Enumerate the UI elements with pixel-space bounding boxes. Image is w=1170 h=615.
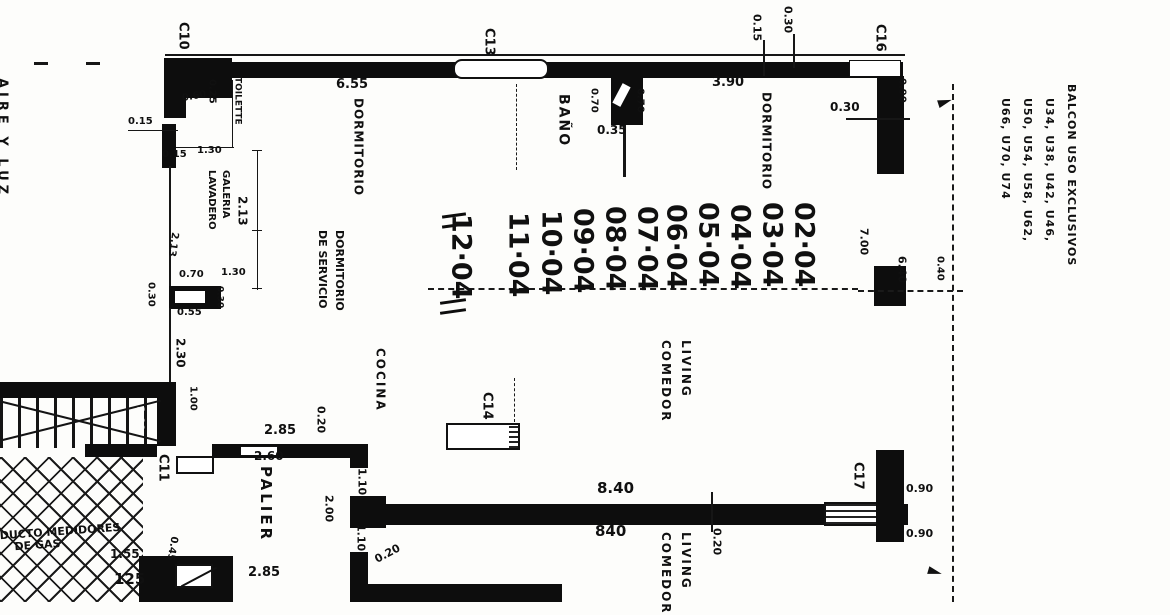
balcony-note-line: U34, U38, U42, U46,: [1038, 98, 1060, 266]
dim-label: 0.20: [373, 542, 402, 565]
dim-label: 0.30: [145, 282, 156, 307]
partition-guide: [516, 84, 517, 170]
door-leaf: [181, 567, 217, 588]
unit-number: 12·04: [446, 214, 474, 299]
room-label-line: LIVING: [676, 532, 696, 615]
dim-label: 1.10: [356, 468, 368, 495]
room-label-toilette: TOILETTE: [232, 77, 241, 125]
column-ref-c14: C14: [480, 392, 494, 420]
duct-slot: [175, 291, 205, 303]
galeria-dim-line: [257, 150, 258, 290]
dim-label: 0.40: [934, 256, 945, 281]
dim-label: 0.70: [588, 88, 599, 113]
dim-tick: [252, 150, 262, 151]
partition-guide: [514, 378, 515, 422]
dim-label: 6.55: [336, 78, 368, 92]
stair-right-wall: [157, 396, 176, 446]
dim-line-015: [128, 130, 178, 131]
dim-label: 1.30: [221, 268, 246, 279]
room-label-dormitorio-left: DORMITORIO: [352, 98, 365, 196]
dim-label: 2.60: [254, 450, 284, 463]
room-label-bano: BAÑO: [556, 94, 571, 147]
dim-label: 0.70: [634, 88, 645, 113]
stair-lower-wall: [85, 444, 157, 457]
dim-label: 0.90: [896, 78, 907, 103]
dim-label: 0.55: [177, 308, 202, 319]
dim-label: 0.20: [711, 528, 723, 555]
unit-number: 04·04: [725, 204, 753, 289]
column-ref-c13: C13: [482, 28, 496, 56]
room-label-line: COMEDOR: [656, 532, 676, 615]
dim-label: 2.30: [174, 338, 187, 368]
dim-label: 0.35: [597, 124, 627, 137]
column-ref-c16: C16: [873, 24, 887, 52]
dim-tick: [763, 40, 765, 76]
window-c16: [849, 60, 901, 77]
arrow-icon: [937, 96, 953, 108]
room-label-line: LAVADERO: [204, 170, 218, 230]
dim-label: 1.55: [110, 548, 140, 561]
room-label-dormitorio-right: DORMITORIO: [760, 92, 773, 190]
floor-plan-scan: { "rooms": { "dormitorio_left": "DORMITO…: [0, 0, 1170, 602]
dim-label: 0.15: [162, 150, 187, 161]
left-partition-lower: [169, 308, 171, 386]
dim-label: 6.40: [896, 256, 908, 283]
window-c17: [824, 502, 880, 526]
room-label-cocina: COCINA: [374, 348, 387, 412]
centerline: [858, 290, 963, 292]
bottom-wall-2: [350, 584, 562, 602]
dim-label: 0.30: [830, 101, 860, 114]
balcony-note-line: U50, U54, U58, U62,: [1016, 98, 1038, 266]
unit-number: 10·04: [536, 210, 564, 295]
palier-right-wall-a: [350, 444, 368, 468]
plan-break-dash: [86, 62, 100, 65]
dim-label: 2.85: [264, 424, 296, 438]
dim-label: 2.85: [248, 566, 280, 580]
dim-label: 0.70: [179, 270, 204, 281]
balcony-note-line: U66, U70, U74: [994, 98, 1016, 266]
window-c13: [453, 59, 549, 79]
dim-label: 0.20: [315, 406, 327, 433]
dim-label: 125: [114, 572, 145, 588]
room-label-line: DORMITORIO: [331, 230, 348, 311]
dim-label: 2.00: [323, 495, 335, 522]
dim-label: 2.13: [165, 231, 179, 257]
dim-label: 0.30: [214, 286, 223, 308]
room-label-galeria-lavadero: GALERIA LAVADERO: [200, 170, 232, 230]
room-label-living-comedor: LIVING COMEDOR: [650, 340, 696, 423]
fixture-hatch: [509, 425, 518, 448]
balcony-boundary-line: [952, 84, 954, 602]
door-c11: [176, 456, 214, 474]
unit-number: 11·04: [503, 212, 531, 297]
balcony-note: BALCON USO EXCLUSIVOS U34, U38, U42, U46…: [990, 84, 1082, 266]
dim-label: 0.30: [782, 6, 794, 33]
balcony-note-line: BALCON USO EXCLUSIVOS: [1060, 84, 1082, 266]
room-label-living-comedor-2: LIVING COMEDOR: [650, 532, 696, 615]
dim-label: 0.90: [906, 528, 933, 540]
unit-number: 03·04: [757, 202, 785, 287]
stair-top-wall: [0, 382, 176, 398]
dim-label: 0.90: [906, 483, 933, 495]
dim-tick: [793, 34, 795, 68]
plan-break-dash: [34, 62, 48, 65]
dim-label: 1.30: [197, 146, 222, 157]
dim-label: 7.00: [858, 228, 870, 255]
dim-label: 8.40: [597, 481, 634, 497]
fixture-c14: [446, 423, 520, 450]
dim-label: 0.25: [206, 79, 217, 104]
column-c17: [876, 450, 904, 542]
dim-label: 0.60: [181, 90, 207, 105]
left-partition: [169, 166, 171, 288]
unit-number: 02·04: [789, 202, 817, 287]
room-label-line: LIVING: [676, 340, 696, 423]
strike-mark: [440, 308, 466, 315]
arrow-icon: [927, 566, 943, 578]
shaft-label-aire-y-luz: AIRE Y LUZ: [0, 78, 9, 198]
column-ref-c10: C10: [176, 22, 190, 50]
dim-tick: [846, 118, 910, 120]
dim-tick: [711, 492, 713, 532]
room-label-dormitorio-servicio: DORMITORIO DE SERVICIO: [306, 230, 348, 311]
unit-number: 06·04: [661, 204, 689, 289]
dim-label: 1.10: [355, 524, 367, 551]
dim-tick: [252, 288, 262, 289]
room-label-line: COMEDOR: [656, 340, 676, 423]
unit-number: 07·04: [632, 206, 660, 291]
dim-label: 1.00: [187, 386, 198, 411]
room-label-palier: PALIER: [257, 466, 273, 542]
dim-label: 2.13: [236, 196, 249, 226]
room-label-line: GALERIA: [218, 170, 232, 230]
dim-label: 3.90: [712, 76, 744, 90]
dim-label: 1.00: [134, 406, 145, 431]
unit-number: 08·04: [600, 206, 628, 291]
column-ref-c17: C17: [851, 462, 865, 490]
dim-label: 0.15: [128, 117, 153, 128]
staircase: [0, 398, 155, 448]
dim-tick: [252, 230, 262, 231]
unit-number: 05·04: [693, 202, 721, 287]
room-label-line: DE SERVICIO: [314, 230, 331, 311]
column-ref-c11: C11: [156, 454, 170, 482]
dim-label: 840: [595, 524, 626, 540]
unit-number: 09·04: [568, 208, 596, 293]
palier-top-wall: [212, 444, 368, 458]
bottom-left-door: [175, 564, 213, 588]
dim-label: 0.15: [751, 14, 763, 41]
